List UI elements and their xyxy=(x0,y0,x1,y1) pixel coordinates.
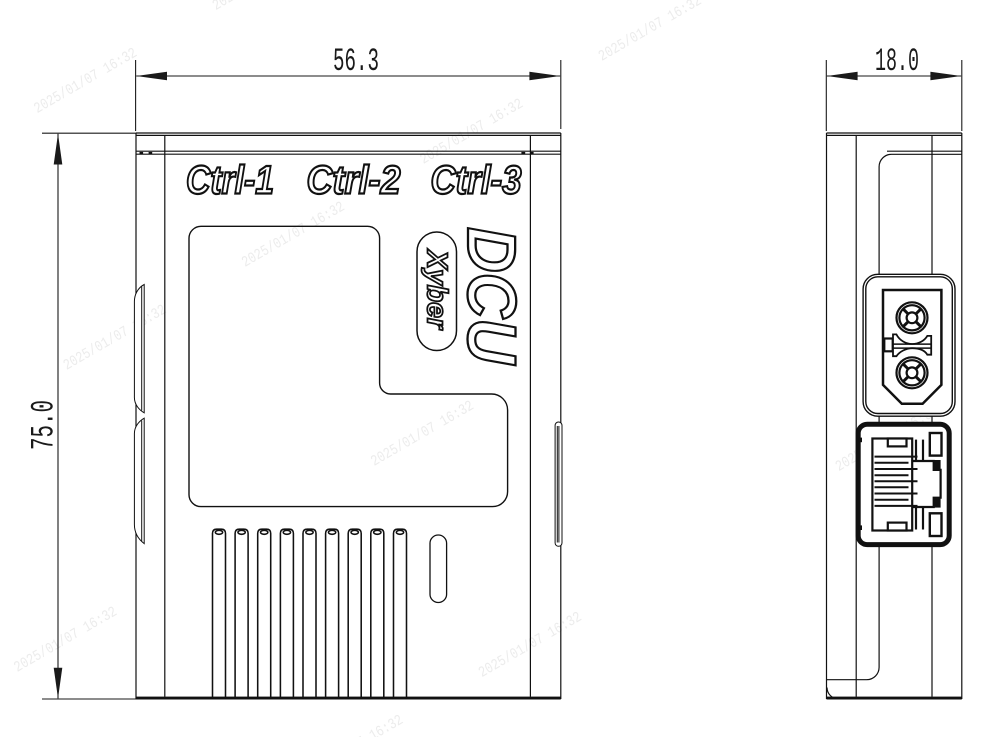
svg-text:18.0: 18.0 xyxy=(875,43,919,80)
svg-text:Ctrl-2: Ctrl-2 xyxy=(307,158,401,202)
svg-text:DCU: DCU xyxy=(453,227,530,366)
svg-text:Xyber: Xyber xyxy=(421,248,453,331)
svg-text:Ctrl-3: Ctrl-3 xyxy=(431,158,522,202)
svg-text:75.0: 75.0 xyxy=(26,400,63,450)
svg-text:56.3: 56.3 xyxy=(333,43,379,80)
svg-text:Ctrl-1: Ctrl-1 xyxy=(186,158,274,202)
